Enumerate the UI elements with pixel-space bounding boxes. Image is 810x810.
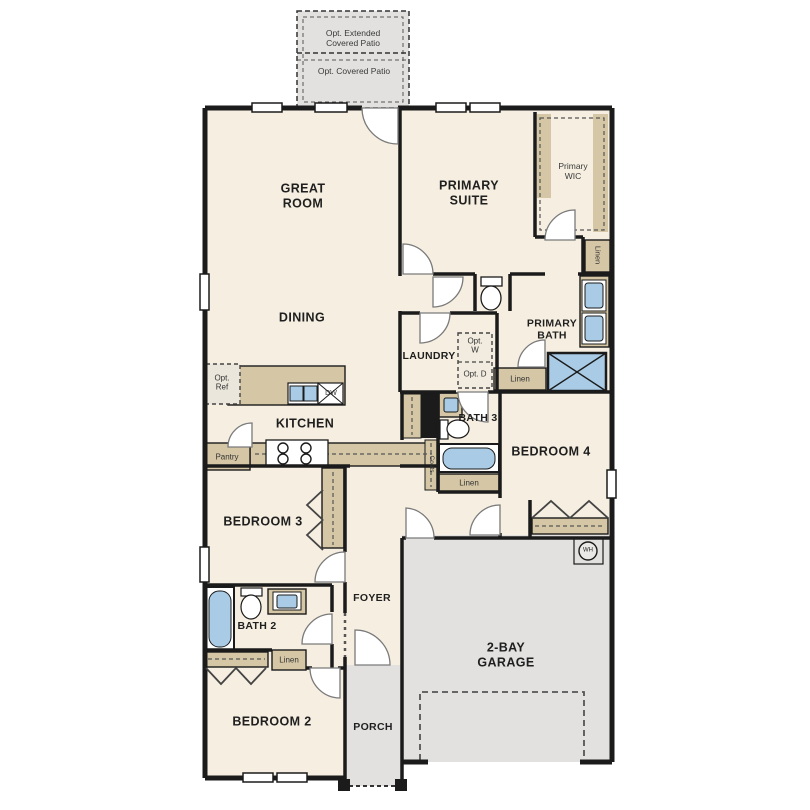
window (277, 773, 307, 782)
bath3-toilet (440, 420, 469, 439)
window (436, 103, 466, 112)
window (470, 103, 500, 112)
linen-bath3-closet (439, 474, 499, 492)
island-sink (290, 386, 303, 401)
bath2-sink (277, 595, 297, 608)
cooktop (266, 440, 328, 466)
opt-washer-dryer-box (458, 333, 492, 388)
window (200, 547, 209, 582)
bath3-tub (439, 444, 499, 472)
primary-bath-toilet (481, 277, 502, 310)
window (243, 773, 273, 782)
primary-sink-1 (585, 283, 603, 308)
opt-refrigerator-box (206, 364, 240, 404)
wall-chase (421, 392, 437, 438)
bath2-toilet (241, 588, 262, 619)
window (200, 274, 209, 310)
linen-bath2-closet (272, 650, 306, 670)
primary-shower (548, 353, 606, 391)
porch-floor (345, 665, 402, 786)
floor-plan-page: Opt. Extended Covered Patio Opt. Covered… (0, 0, 810, 810)
water-heater (574, 538, 603, 564)
bath2-tub (206, 587, 234, 650)
patio-area (297, 11, 409, 108)
linen-primary-bath-closet (494, 368, 546, 390)
garage-floor (402, 535, 612, 762)
linen-primary-hall-closet (585, 240, 610, 272)
floor-plan-drawing (0, 0, 810, 810)
window (252, 103, 282, 112)
primary-sink-2 (585, 316, 603, 341)
bath3-sink (444, 398, 458, 412)
window (315, 103, 347, 112)
window (607, 470, 616, 498)
